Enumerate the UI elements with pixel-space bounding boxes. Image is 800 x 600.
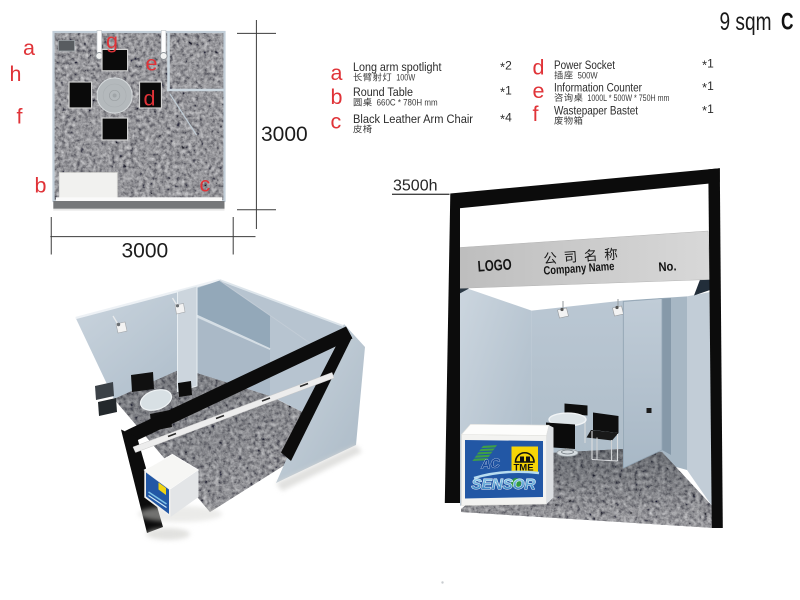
svg-text:d: d xyxy=(533,56,545,80)
svg-text:SENSOR: SENSOR xyxy=(472,477,537,493)
svg-text:c: c xyxy=(200,173,211,197)
svg-text:g: g xyxy=(106,29,118,53)
svg-text:d: d xyxy=(144,87,156,111)
svg-text:b: b xyxy=(35,174,47,198)
svg-text:a: a xyxy=(23,36,35,60)
svg-text:f: f xyxy=(17,105,23,129)
svg-text:*1: *1 xyxy=(702,57,714,73)
svg-text:h: h xyxy=(10,62,22,86)
svg-text:1000L * 500W * 750H mm: 1000L * 500W * 750H mm xyxy=(587,93,669,103)
svg-text:Wastepaper Bastet: Wastepaper Bastet xyxy=(554,104,638,118)
svg-text:C: C xyxy=(781,9,794,36)
svg-text:a: a xyxy=(331,61,343,85)
svg-text:e: e xyxy=(146,52,158,76)
svg-text:3500h: 3500h xyxy=(393,178,438,195)
svg-text:*1: *1 xyxy=(702,102,714,118)
svg-text:*2: *2 xyxy=(500,59,512,75)
svg-text:660C * 780H mm: 660C * 780H mm xyxy=(377,98,438,108)
svg-text:9 sqm: 9 sqm xyxy=(720,8,772,36)
svg-text:f: f xyxy=(533,102,539,126)
svg-text:*1: *1 xyxy=(702,79,714,95)
svg-text:3000: 3000 xyxy=(122,240,169,263)
svg-text:c: c xyxy=(331,110,342,134)
svg-text:*4: *4 xyxy=(500,111,512,127)
svg-text:100W: 100W xyxy=(396,73,415,83)
svg-text:3000: 3000 xyxy=(261,123,308,146)
svg-text:*1: *1 xyxy=(500,84,512,100)
svg-text:500W: 500W xyxy=(578,71,598,81)
svg-text:LOGO: LOGO xyxy=(477,256,512,275)
svg-text:Black Leather Arm Chair: Black Leather Arm Chair xyxy=(353,112,473,126)
svg-text:b: b xyxy=(331,85,343,109)
svg-text:e: e xyxy=(533,79,545,103)
svg-text:No.: No. xyxy=(658,258,677,274)
svg-text:AC: AC xyxy=(480,455,501,471)
